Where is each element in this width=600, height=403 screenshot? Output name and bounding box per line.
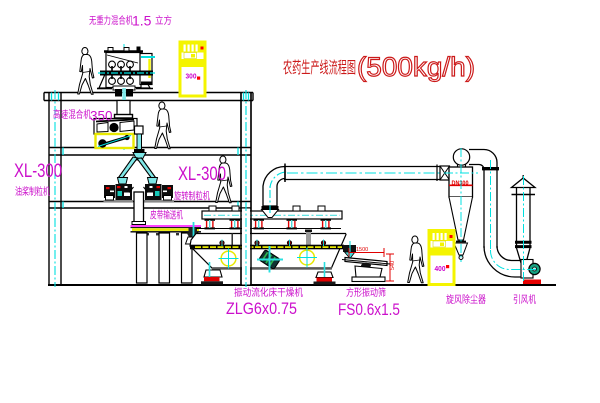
- svg-text:高速混合机: 高速混合机: [53, 108, 91, 121]
- svg-text:XL-300: XL-300: [178, 163, 226, 185]
- svg-text:1500: 1500: [356, 247, 368, 253]
- svg-text:旋转制粒机: 旋转制粒机: [174, 190, 210, 203]
- svg-text:350: 350: [90, 109, 113, 124]
- svg-text:旋风除尘器: 旋风除尘器: [446, 293, 486, 306]
- svg-text:无重力混合机: 无重力混合机: [89, 14, 133, 27]
- svg-text:1.5: 1.5: [132, 13, 152, 29]
- svg-text:(500kg/h): (500kg/h): [357, 52, 475, 82]
- svg-text:皮带输送机: 皮带输送机: [150, 209, 183, 222]
- svg-text:油桨制粒机: 油桨制粒机: [15, 185, 50, 198]
- svg-text:DN300: DN300: [452, 180, 469, 187]
- svg-text:FS0.6x1.5: FS0.6x1.5: [338, 300, 400, 319]
- svg-text:农药生产线流程图: 农药生产线流程图: [283, 59, 356, 77]
- svg-text:引风机: 引风机: [513, 293, 536, 306]
- svg-text:方形振动筛: 方形振动筛: [346, 286, 386, 299]
- svg-text:540: 540: [390, 261, 396, 270]
- svg-text:立方: 立方: [155, 14, 172, 27]
- svg-text:400: 400: [435, 264, 446, 273]
- svg-text:XL-300: XL-300: [14, 160, 62, 182]
- svg-text:ZLG6x0.75: ZLG6x0.75: [226, 299, 297, 318]
- svg-text:振动流化床干燥机: 振动流化床干燥机: [234, 286, 303, 299]
